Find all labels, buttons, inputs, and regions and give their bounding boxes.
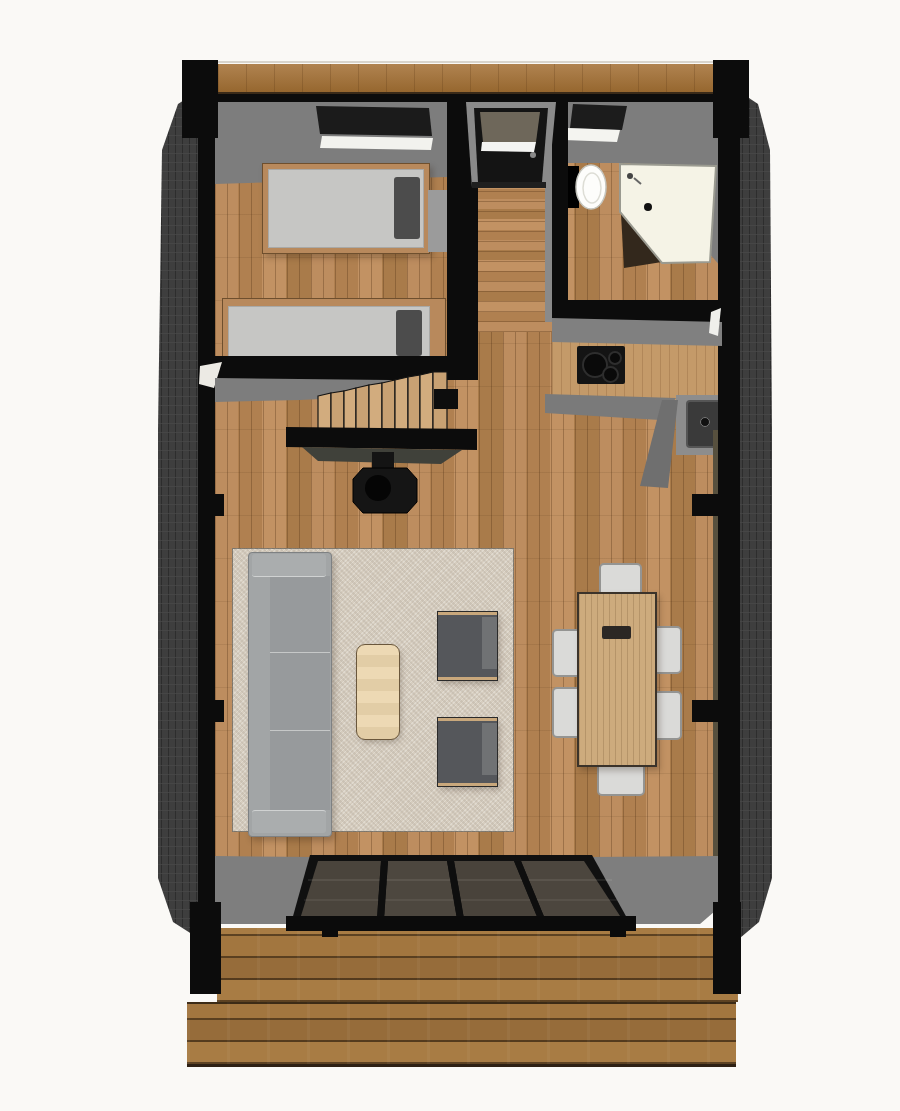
- wall-stud-left-2: [198, 700, 224, 722]
- wall-right: [718, 88, 740, 908]
- wall-bedroom-bottom: [215, 356, 478, 380]
- front-glazing-frame: [290, 855, 632, 927]
- wall-bathroom-left: [552, 88, 568, 322]
- sofa-armrest-bottom: [252, 810, 326, 833]
- glass-pane-2: [384, 861, 457, 919]
- ridge-beam: [218, 64, 714, 94]
- cooktop-burner-small: [608, 351, 622, 365]
- corner-post-bottom-right: [713, 902, 741, 994]
- wall-stud-left-1: [198, 494, 224, 516]
- wall-bedroom-hall: [447, 88, 478, 380]
- armchair-1-backrest: [482, 617, 497, 669]
- bed-lower-pillow: [396, 310, 422, 356]
- deck-upper: [217, 928, 738, 1002]
- armchair-2-backrest: [482, 723, 497, 775]
- wall-bathroom-bottom: [552, 300, 722, 322]
- glazing-mullion-2: [447, 861, 464, 919]
- hall-wall-gray-strip: [545, 104, 552, 322]
- wall-stud-right-1: [692, 494, 718, 516]
- corner-post-top-left: [182, 60, 218, 138]
- deck-lower-step: [187, 1002, 736, 1067]
- sofa-armrest-top: [252, 554, 326, 577]
- glass-pane-3: [454, 861, 538, 919]
- glazing-mullion-3: [514, 861, 545, 919]
- floor-plan-canvas: [0, 0, 900, 1111]
- glazing-mullion-1: [377, 861, 388, 919]
- sofa-seat-divider-2: [270, 730, 330, 731]
- bedside-shelf: [428, 190, 447, 252]
- cooktop-burner-medium: [602, 366, 619, 383]
- wall-stud-right-2: [692, 700, 718, 722]
- sofa-seat-divider-1: [270, 652, 330, 653]
- front-roof-wedge-right: [589, 856, 722, 924]
- serving-tray: [602, 626, 631, 639]
- bed-upper-pillow: [394, 177, 420, 239]
- dining-table: [577, 592, 657, 767]
- sofa-seat: [270, 576, 330, 810]
- corner-post-top-right: [713, 60, 749, 138]
- floor-hallway: [466, 184, 552, 332]
- coffee-table: [356, 644, 400, 740]
- glass-pane-4: [521, 861, 622, 919]
- glass-pane-1: [300, 861, 381, 919]
- sink-faucet: [700, 417, 710, 427]
- corner-post-bottom-left: [190, 902, 221, 994]
- front-roof-wedge-left: [215, 856, 313, 924]
